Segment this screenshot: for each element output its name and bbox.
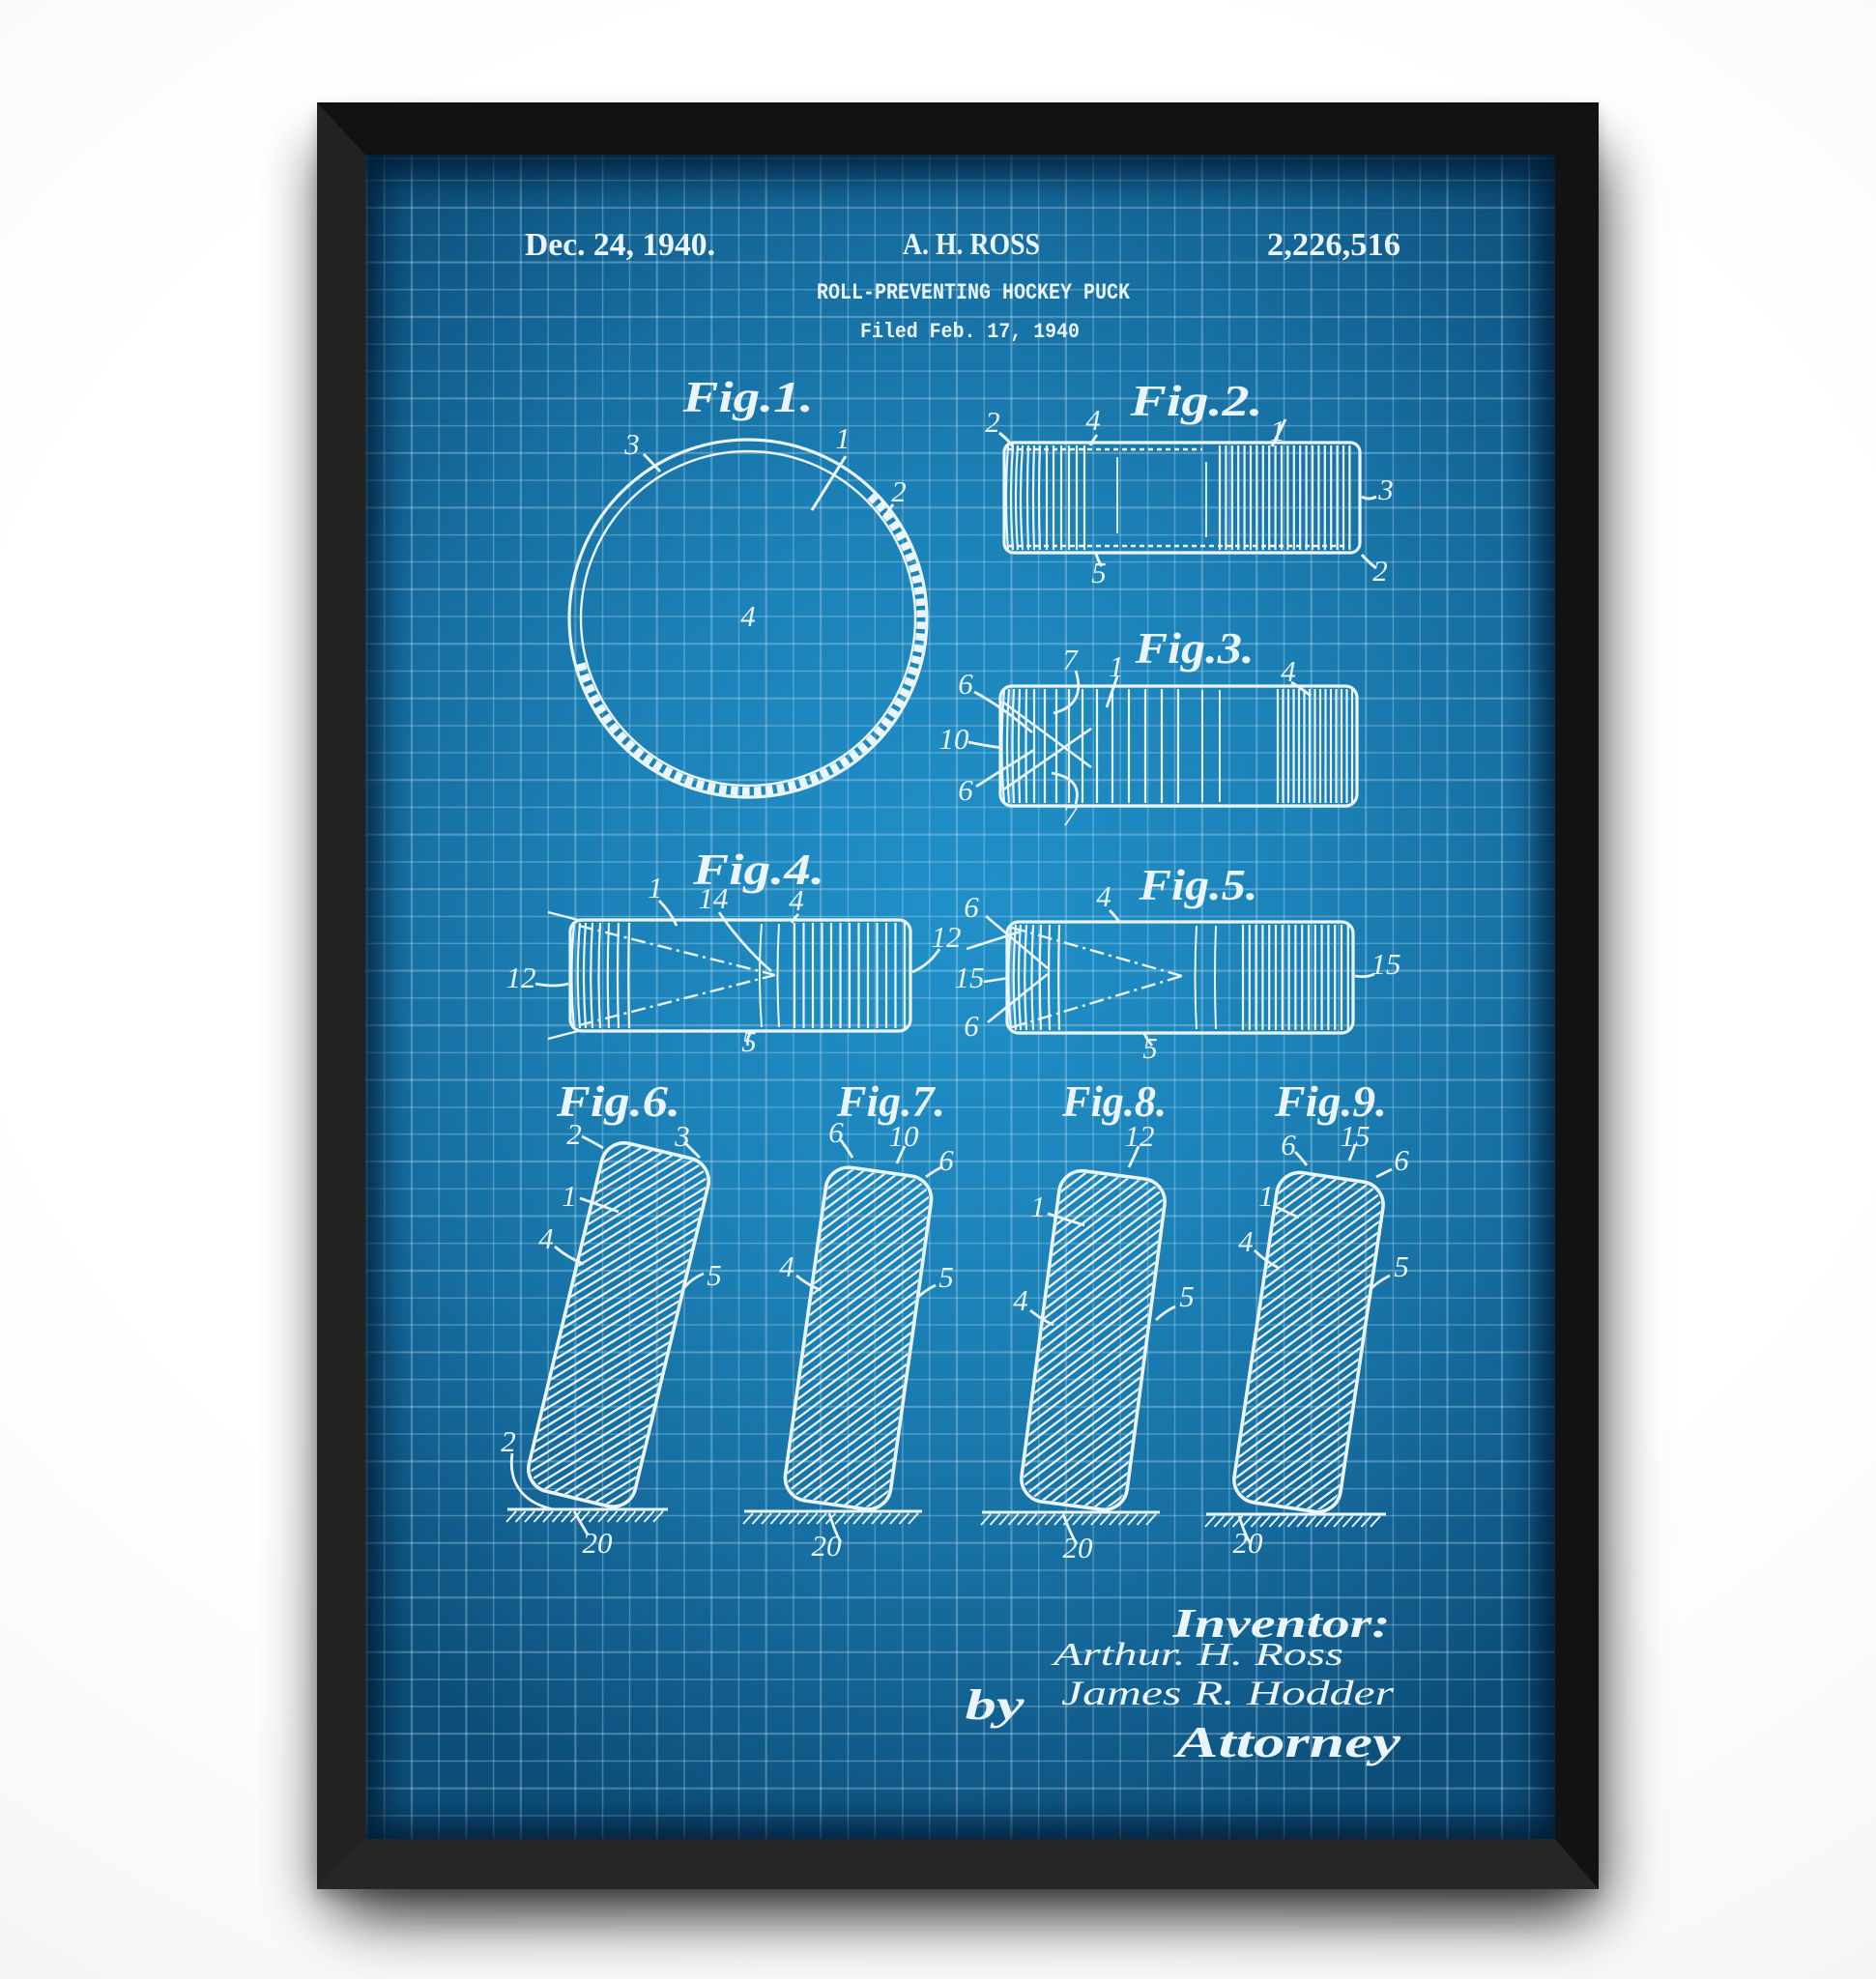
svg-text:3: 3 — [623, 427, 640, 461]
svg-text:Arthur. H. Ross: Arthur. H. Ross — [1051, 1637, 1343, 1673]
svg-text:12: 12 — [506, 961, 536, 994]
svg-text:by: by — [966, 1681, 1025, 1729]
svg-text:1: 1 — [1109, 649, 1124, 683]
svg-text:4: 4 — [1085, 403, 1101, 437]
svg-text:3: 3 — [674, 1119, 690, 1153]
svg-text:15: 15 — [1341, 1119, 1371, 1153]
svg-text:7: 7 — [1062, 643, 1079, 676]
svg-text:15: 15 — [1371, 947, 1401, 981]
svg-text:6: 6 — [958, 773, 973, 807]
svg-text:Filed Feb. 17, 1940: Filed Feb. 17, 1940 — [860, 320, 1080, 344]
svg-text:4: 4 — [1096, 879, 1111, 913]
svg-text:7: 7 — [1062, 798, 1079, 832]
svg-text:3: 3 — [1377, 473, 1394, 506]
svg-text:5: 5 — [938, 1260, 954, 1294]
svg-text:Fig.3.: Fig.3. — [1134, 623, 1254, 673]
svg-text:5: 5 — [707, 1258, 722, 1292]
svg-text:1: 1 — [1258, 1179, 1274, 1213]
svg-text:James R. Hodder: James R. Hodder — [1061, 1674, 1395, 1712]
svg-text:20: 20 — [812, 1529, 843, 1563]
svg-text:4: 4 — [740, 599, 756, 633]
svg-text:12: 12 — [932, 920, 962, 954]
svg-text:Dec. 24, 1940.: Dec. 24, 1940. — [525, 227, 715, 263]
svg-text:Fig.5.: Fig.5. — [1138, 860, 1257, 909]
svg-text:6: 6 — [828, 1115, 844, 1149]
svg-text:1: 1 — [1030, 1190, 1046, 1223]
svg-text:12: 12 — [1125, 1119, 1155, 1153]
svg-text:6: 6 — [964, 890, 979, 924]
svg-text:2: 2 — [985, 405, 1000, 439]
svg-text:5: 5 — [1179, 1279, 1195, 1313]
svg-text:1: 1 — [1270, 414, 1285, 447]
svg-text:4: 4 — [1238, 1224, 1254, 1258]
svg-text:14: 14 — [699, 881, 729, 915]
svg-text:6: 6 — [958, 667, 973, 701]
svg-text:Fig.1.: Fig.1. — [681, 372, 813, 421]
svg-text:10: 10 — [889, 1119, 920, 1153]
svg-text:10: 10 — [939, 722, 970, 756]
svg-text:6: 6 — [1281, 1128, 1296, 1162]
svg-text:1: 1 — [835, 421, 851, 455]
svg-text:2: 2 — [501, 1424, 516, 1458]
svg-text:Attorney: Attorney — [1172, 1717, 1401, 1766]
svg-text:2: 2 — [1372, 554, 1388, 588]
svg-text:5: 5 — [1394, 1249, 1409, 1283]
svg-text:2: 2 — [891, 474, 907, 508]
svg-text:1: 1 — [562, 1179, 577, 1213]
svg-text:2,226,516: 2,226,516 — [1267, 227, 1400, 263]
svg-text:1: 1 — [648, 871, 663, 904]
svg-text:5: 5 — [741, 1024, 757, 1058]
svg-text:20: 20 — [1063, 1531, 1094, 1564]
svg-text:4: 4 — [779, 1249, 794, 1283]
svg-text:6: 6 — [938, 1143, 954, 1177]
svg-text:20: 20 — [1233, 1526, 1264, 1560]
svg-text:Fig.2.: Fig.2. — [1129, 376, 1262, 425]
svg-text:A. H. ROSS: A. H. ROSS — [903, 226, 1040, 261]
svg-text:6: 6 — [964, 1009, 979, 1043]
svg-text:4: 4 — [789, 883, 804, 917]
svg-text:4: 4 — [538, 1221, 554, 1255]
svg-text:20: 20 — [583, 1526, 614, 1560]
svg-text:5: 5 — [1091, 556, 1107, 589]
svg-text:4: 4 — [1013, 1283, 1028, 1317]
svg-text:15: 15 — [955, 961, 985, 994]
svg-text:ROLL-PREVENTING HOCKEY PUCK: ROLL-PREVENTING HOCKEY PUCK — [817, 280, 1130, 305]
svg-text:2: 2 — [566, 1117, 582, 1151]
svg-text:4: 4 — [1281, 654, 1296, 688]
svg-text:5: 5 — [1142, 1031, 1158, 1065]
svg-text:6: 6 — [1394, 1143, 1409, 1177]
